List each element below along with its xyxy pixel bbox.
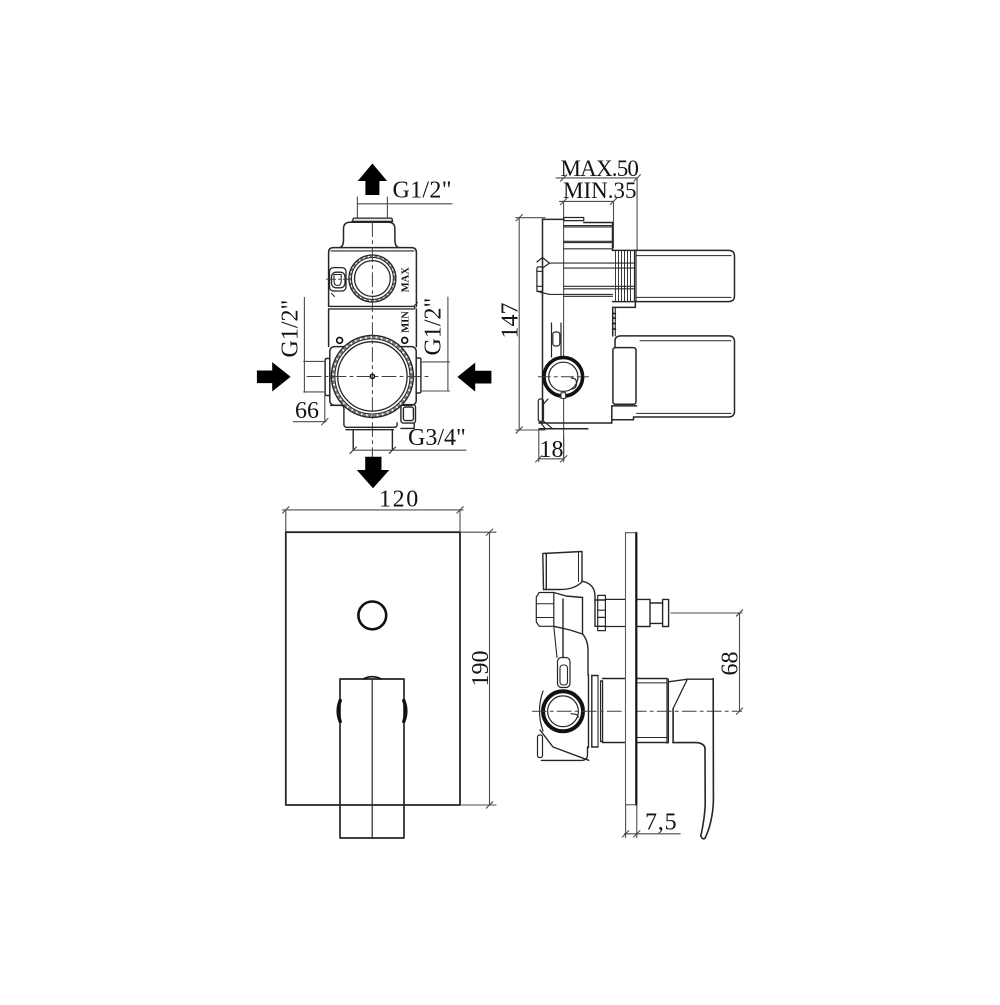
- svg-text:190: 190: [468, 651, 494, 687]
- svg-text:MIN.35: MIN.35: [563, 178, 636, 203]
- svg-text:18: 18: [540, 437, 564, 463]
- svg-text:MIN: MIN: [400, 311, 411, 333]
- svg-text:G1/2": G1/2": [421, 298, 447, 356]
- svg-text:G3/4": G3/4": [408, 425, 466, 451]
- svg-text:147: 147: [498, 303, 524, 339]
- svg-text:7,5: 7,5: [645, 810, 677, 836]
- svg-text:120: 120: [379, 487, 420, 513]
- svg-text:G1/2": G1/2": [278, 300, 304, 358]
- svg-text:MAX: MAX: [400, 267, 411, 292]
- svg-text:66: 66: [295, 398, 319, 424]
- svg-text:G1/2": G1/2": [393, 178, 452, 204]
- svg-text:68: 68: [718, 652, 744, 676]
